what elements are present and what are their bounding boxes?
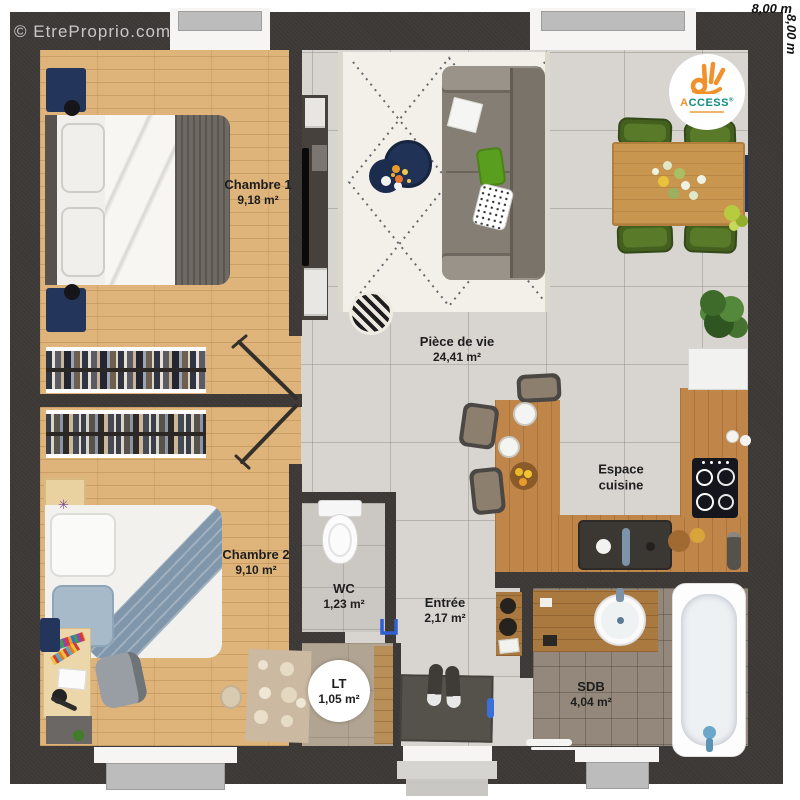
access-logo: ACCESS®	[669, 54, 745, 130]
bed-1-duvet	[105, 115, 175, 285]
lt-cabinet	[374, 646, 393, 744]
plant-large	[700, 290, 726, 316]
fridge	[688, 348, 748, 390]
fruit-bowl	[510, 462, 538, 490]
window-bottom-sdb-glass	[586, 762, 649, 789]
front-porch-step2	[406, 779, 488, 796]
table-bouquet	[392, 165, 400, 173]
clothes-rack-1	[46, 347, 206, 393]
room-area: 24,41 m²	[420, 350, 494, 364]
room-label-entree: Entrée 2,17 m²	[424, 595, 465, 625]
tv-shelf-top	[305, 98, 325, 128]
window-bottom-chambre2	[94, 747, 237, 763]
logo-registered: ®	[729, 97, 734, 103]
sneaker-left	[427, 664, 444, 707]
room-label-chambre2: Chambre 2 9,10 m²	[222, 547, 289, 577]
toilet-bowl	[322, 514, 358, 564]
blue-bottle	[487, 698, 494, 718]
sneaker-right	[445, 666, 461, 709]
teddy-bear-brown	[220, 685, 242, 709]
room-label-wc: WC 1,23 m²	[323, 581, 364, 611]
bar-chair-1	[516, 373, 561, 403]
room-name: Chambre 2	[222, 547, 289, 563]
towel-rail	[526, 739, 572, 746]
room-name: LT	[318, 676, 359, 692]
room-label-chambre1: Chambre 1 9,18 m²	[224, 177, 291, 207]
tv-gray-box	[312, 145, 327, 171]
pouf	[349, 291, 393, 335]
sink-faucet	[622, 528, 630, 566]
sofa-backrest	[510, 68, 545, 278]
room-name: WC	[323, 581, 364, 597]
burner-2	[717, 468, 735, 486]
room-area: 1,23 m²	[323, 597, 364, 611]
spice-jar	[690, 528, 705, 543]
dining-chair-4	[683, 221, 737, 254]
white-jars	[726, 430, 739, 443]
rack-1-rail	[46, 368, 206, 372]
lamp-1	[64, 100, 80, 116]
lamp-2	[64, 284, 80, 300]
wc-wall-bottom	[301, 632, 345, 643]
clothes-rack-2	[46, 410, 206, 458]
room-area: 9,10 m²	[222, 563, 289, 577]
tv-drawer-unit	[304, 268, 327, 316]
room-area: 9,18 m²	[224, 193, 291, 207]
room-name: Entrée	[424, 595, 465, 611]
floor-plan: ✳	[0, 0, 800, 800]
bed-1-headboard	[45, 115, 57, 285]
room-label-lt: LT 1,05 m²	[318, 676, 359, 706]
book	[498, 638, 519, 654]
logo-tagline-line	[690, 111, 724, 113]
sink-drain	[646, 542, 655, 551]
front-porch-step1	[397, 761, 497, 779]
tv-console	[302, 95, 328, 320]
wc-wall-right	[385, 492, 396, 643]
speaker-2	[499, 618, 517, 636]
room-label-sdb: SDB 4,04 m²	[570, 679, 611, 709]
basin-faucet	[616, 588, 624, 602]
bar-chair-2	[458, 402, 500, 451]
burner-3	[696, 493, 714, 511]
sofa-pillow-green	[475, 146, 506, 187]
toilet-seat	[328, 523, 352, 557]
bed-1	[45, 115, 230, 285]
tv-screen	[302, 148, 309, 266]
burner-1	[696, 469, 713, 486]
bathtub-basin	[681, 594, 737, 746]
bathtub-mixer	[706, 738, 713, 752]
logo-letters: CCESS	[689, 97, 729, 109]
window-top-chambre1-glass	[178, 11, 262, 31]
window-bottom-chambre2-glass	[106, 763, 225, 790]
front-door-threshold	[403, 746, 492, 761]
room-area: 4,04 m²	[570, 695, 611, 709]
room-label-espace-cuisine: Espace cuisine	[589, 461, 653, 492]
basin-drain	[617, 617, 624, 624]
room-name: Espace cuisine	[589, 461, 653, 492]
room-name: SDB	[570, 679, 611, 695]
bathtub	[672, 583, 746, 757]
entry-shelf	[496, 592, 522, 656]
rack-2-rail	[46, 432, 206, 436]
bedroom-divider-wall	[40, 394, 302, 407]
sofa-napkin	[447, 97, 483, 133]
sofa	[442, 66, 545, 280]
watermark: © EtreProprio.com	[14, 22, 171, 42]
window-top-living-glass	[541, 11, 685, 31]
room-area: 2,17 m²	[424, 611, 465, 625]
room-name: Chambre 1	[224, 177, 291, 193]
plant-yellow	[724, 205, 740, 221]
plate-1	[513, 402, 537, 426]
oil-bottle	[727, 532, 741, 570]
toys-mat	[245, 649, 311, 743]
cooktop	[692, 458, 738, 518]
speaker-1	[500, 598, 516, 614]
bed-1-pillow-top	[61, 123, 105, 193]
table-flowers	[652, 168, 659, 175]
sink-soap	[596, 539, 611, 554]
compass-decor: ✳	[58, 498, 72, 512]
room-area: 1,05 m²	[318, 692, 359, 706]
vanity-items	[540, 598, 552, 607]
bed-1-blanket	[175, 115, 230, 285]
desk-mat	[46, 716, 92, 744]
cutting-board	[668, 530, 690, 552]
bedside-stool	[40, 618, 60, 652]
room-name: Pièce de vie	[420, 334, 494, 350]
kitchen-sink	[578, 520, 672, 570]
papers	[57, 668, 87, 690]
logo-letter-a: A	[680, 97, 688, 109]
teddy-bears	[258, 660, 268, 670]
dimension-height: 8,00 m	[784, 14, 799, 54]
coffee-cups	[381, 176, 391, 186]
cooktop-dots	[702, 461, 705, 464]
bed-2-pillow-white	[50, 513, 116, 577]
plate-2	[498, 436, 520, 458]
small-plant	[73, 730, 84, 741]
fruits	[515, 468, 523, 476]
bar-chair-3	[469, 466, 507, 515]
ok-hand-icon	[685, 60, 729, 94]
burner-4	[718, 494, 734, 510]
room-label-piece-de-vie: Pièce de vie 24,41 m²	[420, 334, 494, 364]
window-bottom-sdb	[575, 747, 659, 762]
sofa-pillow-dotted	[471, 183, 514, 232]
bed-1-pillow-bottom	[61, 207, 105, 277]
